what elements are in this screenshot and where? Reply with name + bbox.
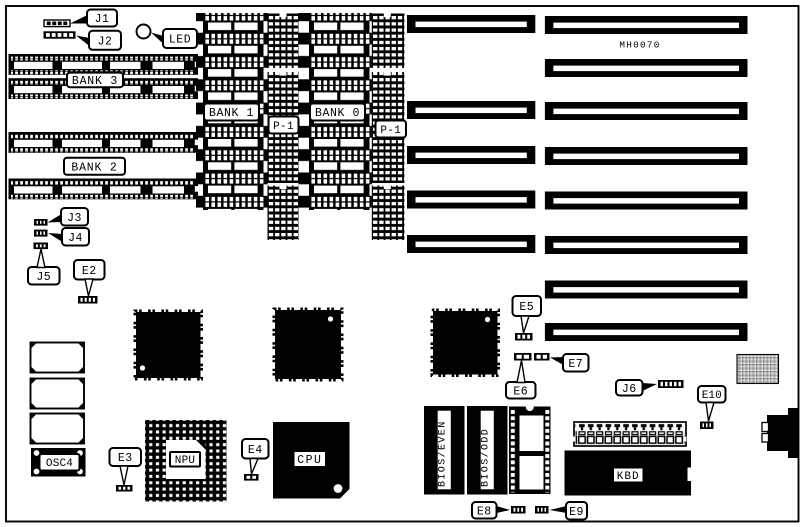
svg-text:E5: E5 [519,301,534,314]
svg-text:E9: E9 [569,506,584,519]
svg-text:NPU: NPU [175,455,195,467]
svg-text:E8: E8 [477,505,492,518]
svg-text:BANK 0: BANK 0 [315,107,360,120]
svg-text:P-1: P-1 [273,121,294,133]
svg-text:E2: E2 [82,265,97,278]
svg-text:E7: E7 [568,358,583,371]
svg-text:E6: E6 [513,385,528,398]
svg-text:E10: E10 [702,390,722,402]
svg-text:BANK 3: BANK 3 [72,75,118,88]
svg-text:E3: E3 [118,452,133,465]
svg-text:LED: LED [169,34,191,47]
svg-text:CPU: CPU [297,454,322,467]
svg-text:J3: J3 [67,212,82,225]
svg-text:J2: J2 [98,35,113,48]
svg-text:BANK 1: BANK 1 [209,107,254,120]
svg-text:BANK 2: BANK 2 [71,161,117,174]
svg-text:E4: E4 [248,444,263,457]
svg-text:J6: J6 [622,383,637,396]
svg-text:BIOS/ODD: BIOS/ODD [480,428,492,487]
svg-text:KBD: KBD [617,471,640,483]
svg-text:J1: J1 [95,13,110,26]
svg-text:J4: J4 [68,232,83,245]
svg-text:J5: J5 [36,271,51,284]
svg-text:MH0070: MH0070 [619,40,660,51]
svg-text:P-1: P-1 [380,125,401,137]
svg-text:OSC4: OSC4 [46,458,73,470]
svg-text:BIOS/EVEN: BIOS/EVEN [437,420,449,487]
